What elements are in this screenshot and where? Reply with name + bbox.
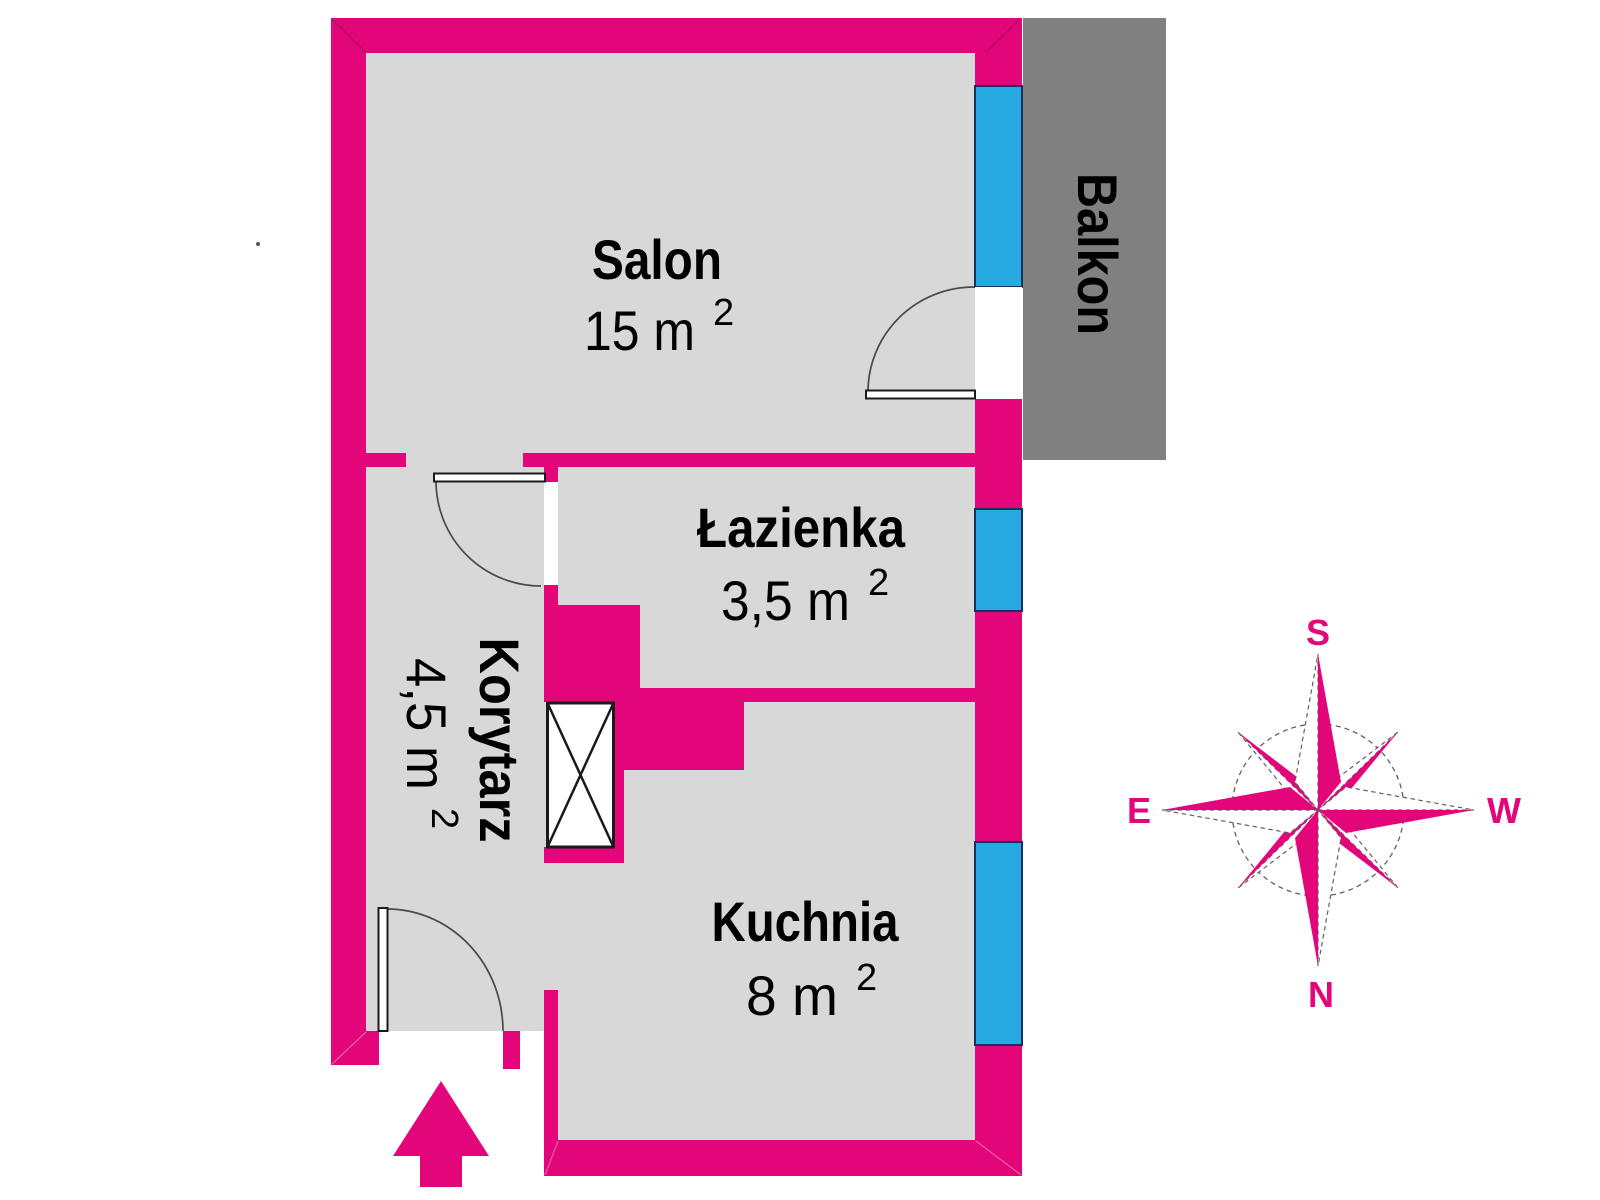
svg-text:W: W	[1487, 790, 1521, 831]
svg-text:Salon: Salon	[592, 228, 722, 291]
svg-text:E: E	[1127, 790, 1151, 831]
svg-text:S: S	[1306, 612, 1330, 653]
svg-text:N: N	[1308, 974, 1334, 1015]
svg-text:Korytarz: Korytarz	[468, 638, 531, 843]
svg-text:Łazienka: Łazienka	[697, 496, 906, 559]
svg-text:Balkon: Balkon	[1066, 173, 1129, 335]
svg-text:Kuchnia: Kuchnia	[712, 890, 900, 953]
